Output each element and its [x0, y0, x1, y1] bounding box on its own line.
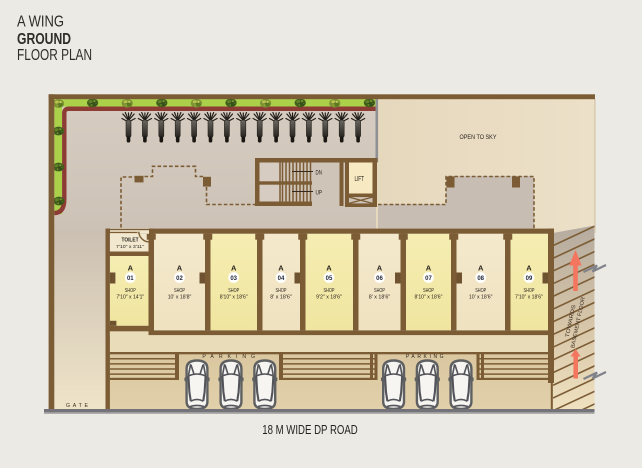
- svg-text:GATE: GATE: [66, 403, 91, 409]
- svg-text:A: A: [377, 263, 383, 272]
- svg-text:01: 01: [127, 276, 134, 282]
- svg-text:SHOP: SHOP: [276, 288, 287, 294]
- svg-text:PARKING: PARKING: [202, 354, 259, 360]
- svg-text:10' x 18'8": 10' x 18'8": [168, 294, 192, 300]
- svg-text:LIFT: LIFT: [354, 176, 364, 183]
- svg-text:05: 05: [326, 276, 333, 282]
- svg-text:SHOP: SHOP: [423, 288, 434, 294]
- svg-text:GROUND: GROUND: [17, 31, 71, 48]
- svg-text:SHOP: SHOP: [174, 288, 185, 294]
- svg-text:A: A: [526, 263, 532, 272]
- svg-text:SHOP: SHOP: [228, 288, 239, 294]
- svg-text:TOILET: TOILET: [122, 238, 139, 244]
- svg-text:SHOP: SHOP: [524, 288, 535, 294]
- svg-text:A: A: [478, 263, 484, 272]
- svg-text:A: A: [426, 263, 432, 272]
- svg-text:UP: UP: [316, 191, 323, 197]
- svg-text:A: A: [278, 263, 284, 272]
- svg-text:DN: DN: [316, 171, 323, 177]
- svg-text:02: 02: [176, 276, 183, 282]
- svg-text:09: 09: [526, 276, 533, 282]
- svg-text:PARKING: PARKING: [406, 354, 446, 360]
- svg-text:8' x 18'6": 8' x 18'6": [369, 294, 391, 300]
- svg-text:18 M WIDE DP ROAD: 18 M WIDE DP ROAD: [262, 422, 358, 437]
- svg-text:A: A: [177, 263, 183, 272]
- svg-text:08: 08: [477, 276, 484, 282]
- svg-text:03: 03: [230, 276, 237, 282]
- svg-text:A WING: A WING: [17, 14, 64, 31]
- svg-text:8'10" x 18'6": 8'10" x 18'6": [415, 294, 443, 300]
- svg-text:A: A: [128, 263, 134, 272]
- svg-text:7'10" x 18'6": 7'10" x 18'6": [515, 294, 543, 300]
- svg-text:OPEN TO SKY: OPEN TO SKY: [460, 134, 498, 141]
- svg-text:A: A: [231, 263, 237, 272]
- svg-text:06: 06: [376, 276, 383, 282]
- svg-text:A: A: [326, 263, 332, 272]
- svg-text:07: 07: [425, 276, 432, 282]
- svg-text:SHOP: SHOP: [125, 288, 136, 294]
- svg-text:SHOP: SHOP: [374, 288, 385, 294]
- svg-text:SHOP: SHOP: [475, 288, 486, 294]
- svg-text:10' x 18'6": 10' x 18'6": [469, 294, 493, 300]
- svg-text:SHOP: SHOP: [324, 288, 335, 294]
- svg-text:9'2" x 18'6": 9'2" x 18'6": [316, 294, 342, 300]
- svg-text:FLOOR PLAN: FLOOR PLAN: [17, 47, 92, 64]
- svg-text:7'10" x 3'11": 7'10" x 3'11": [116, 244, 144, 250]
- svg-text:04: 04: [278, 276, 285, 282]
- svg-text:7'10" x 14'1": 7'10" x 14'1": [116, 294, 144, 300]
- svg-text:8'10" x 18'6": 8'10" x 18'6": [220, 294, 248, 300]
- svg-text:8' x 18'6": 8' x 18'6": [270, 294, 292, 300]
